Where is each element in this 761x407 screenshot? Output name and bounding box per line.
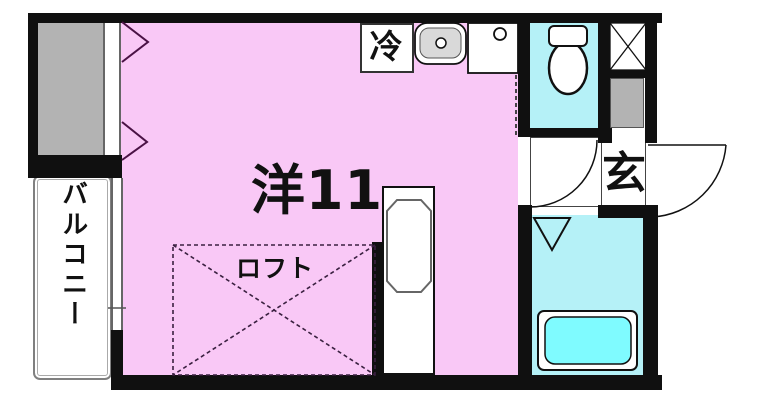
window-upper <box>103 23 121 155</box>
wall-right-upper <box>645 13 657 140</box>
washroom-hall <box>530 137 602 207</box>
wall-toilet-bottom <box>522 128 603 137</box>
wall-genkan-stub <box>598 128 612 143</box>
wall-room-stub <box>372 242 384 390</box>
wall-bottom <box>111 375 662 390</box>
balcony-label: バルコニー <box>42 180 102 407</box>
wall-bath-top-right <box>598 205 658 218</box>
wall-toilet-ps <box>598 13 610 143</box>
wall-right-entry-stub <box>645 128 657 143</box>
storage-box <box>610 78 644 128</box>
wall-under-ps <box>610 70 646 78</box>
wall-under-closet <box>28 155 122 178</box>
floor-plan: 洋11 ロフト 冷 玄 バルコニー <box>0 0 761 407</box>
main-room-label: 洋11 <box>222 156 412 226</box>
wall-top <box>28 13 662 23</box>
storage-closet <box>38 23 103 155</box>
pipe-space <box>610 23 646 70</box>
door-swing-arc-icon <box>648 145 726 217</box>
entrance-label: 玄 <box>598 142 650 206</box>
wall-kitchen-toilet <box>518 13 530 137</box>
toilet-room <box>530 23 600 128</box>
loft-label: ロフト <box>200 252 350 286</box>
window-lower <box>111 178 123 330</box>
wall-left-upper <box>28 13 38 178</box>
wall-bath-left <box>518 205 532 390</box>
bathroom <box>532 215 643 375</box>
refrigerator-label: 冷 <box>360 23 412 71</box>
wall-right-lower <box>643 205 658 390</box>
